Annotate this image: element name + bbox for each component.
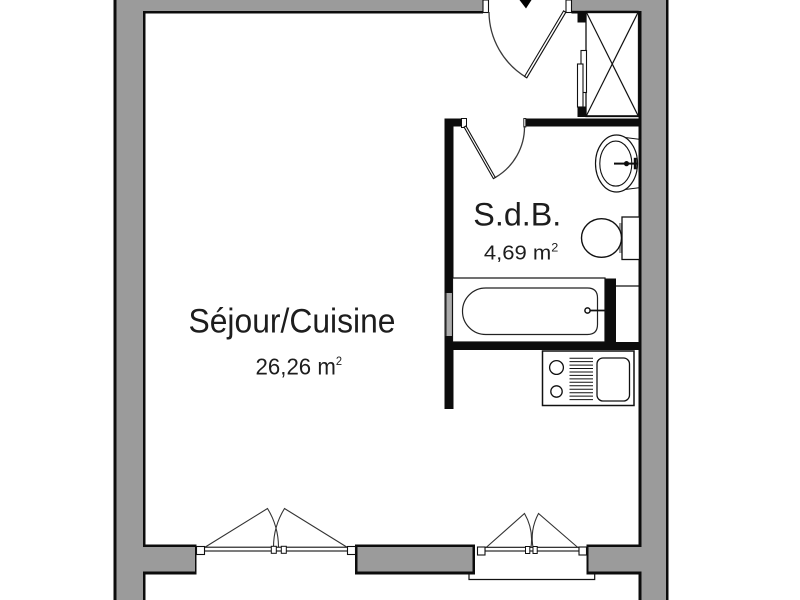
svg-text:4,69 m2: 4,69 m2	[484, 242, 559, 264]
svg-text:26,26 m2: 26,26 m2	[256, 354, 343, 380]
svg-text:Séjour/Cuisine: Séjour/Cuisine	[189, 302, 396, 340]
svg-text:S.d.B.: S.d.B.	[473, 197, 561, 233]
